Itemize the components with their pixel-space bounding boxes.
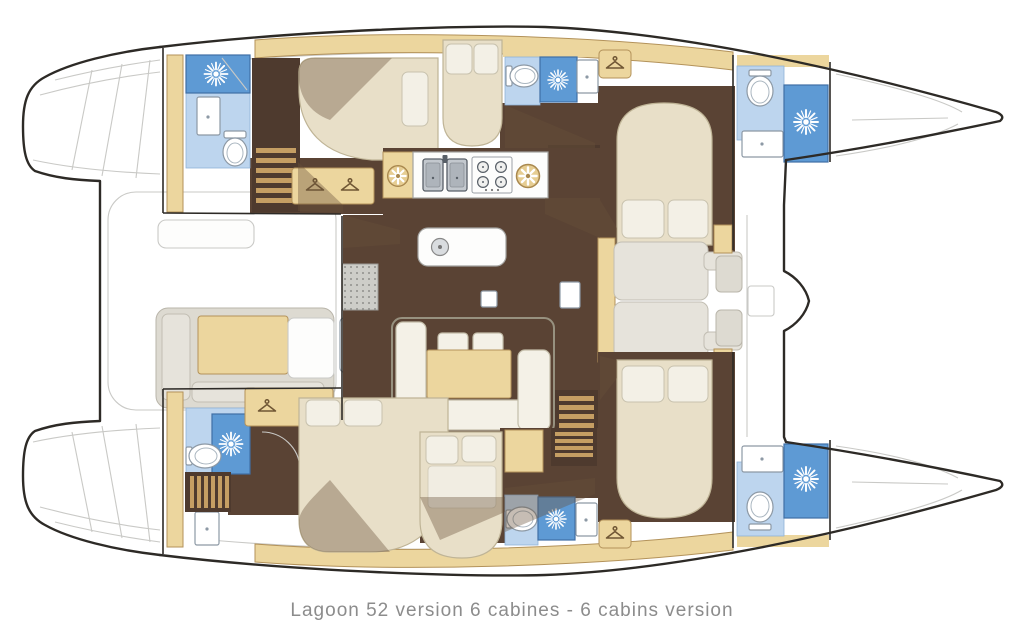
pillow xyxy=(474,44,498,74)
shower-head-icon xyxy=(794,467,818,491)
toilet-icon xyxy=(223,131,247,166)
pillow xyxy=(622,366,664,402)
step-seat xyxy=(716,310,742,346)
port-aft-cabin-bed xyxy=(299,58,438,160)
port-mid-cabin-bed xyxy=(443,40,502,146)
pillow xyxy=(446,44,472,74)
galley-island xyxy=(418,228,506,266)
cockpit-table xyxy=(198,316,288,374)
galley-vent-icon xyxy=(388,166,409,187)
pillow xyxy=(344,400,382,426)
entry-mat-icon xyxy=(342,264,378,310)
floor-hatch xyxy=(560,282,580,308)
pillow xyxy=(668,366,708,402)
saloon-table xyxy=(427,350,511,398)
lounge-cushion xyxy=(614,302,708,358)
shower-head-icon xyxy=(548,70,568,90)
floor-hatch xyxy=(481,291,497,307)
plan-caption: Lagoon 52 version 6 cabines - 6 cabins v… xyxy=(0,600,1024,622)
galley xyxy=(383,152,548,198)
shower-head-icon xyxy=(205,63,228,86)
cockpit-side-seat xyxy=(288,318,334,378)
port-aft-bathroom xyxy=(186,55,250,168)
boat-floor-plan-image: Lagoon 52 version 6 cabines - 6 cabins v… xyxy=(0,0,1024,634)
port-fwd-bathroom xyxy=(737,55,829,162)
cockpit-sunpad xyxy=(158,220,254,248)
toilet-icon xyxy=(747,70,773,106)
toilet-icon xyxy=(747,492,773,530)
shower-head-icon xyxy=(794,110,818,134)
pillow xyxy=(306,400,340,426)
starboard-fwd-cabin-bed xyxy=(617,360,712,518)
lounge-cushion xyxy=(614,242,708,300)
toilet-icon xyxy=(186,444,221,468)
pillow xyxy=(462,436,496,462)
pillow xyxy=(622,200,664,238)
port-fwd-wardrobe xyxy=(599,50,631,78)
port-fwd-cabin-bed xyxy=(617,103,712,245)
step-seat xyxy=(716,256,742,292)
starboard-fwd-wardrobe xyxy=(599,520,631,548)
starboard-fwd-bathroom xyxy=(737,444,829,547)
cockpit-bench-cushion xyxy=(162,314,190,400)
port-mid-bathroom xyxy=(503,47,599,105)
starboard-fwd-stairs xyxy=(551,428,597,466)
sofa-seat xyxy=(518,350,550,430)
stove-icon xyxy=(472,157,512,193)
pillow xyxy=(426,436,458,464)
toilet-icon xyxy=(506,65,538,87)
pillow xyxy=(402,72,428,126)
floor-plan xyxy=(0,0,1024,634)
aft-cockpit xyxy=(156,220,372,408)
pillow xyxy=(668,200,708,238)
shower-head-icon xyxy=(220,433,243,456)
galley-vent-icon xyxy=(517,165,540,188)
